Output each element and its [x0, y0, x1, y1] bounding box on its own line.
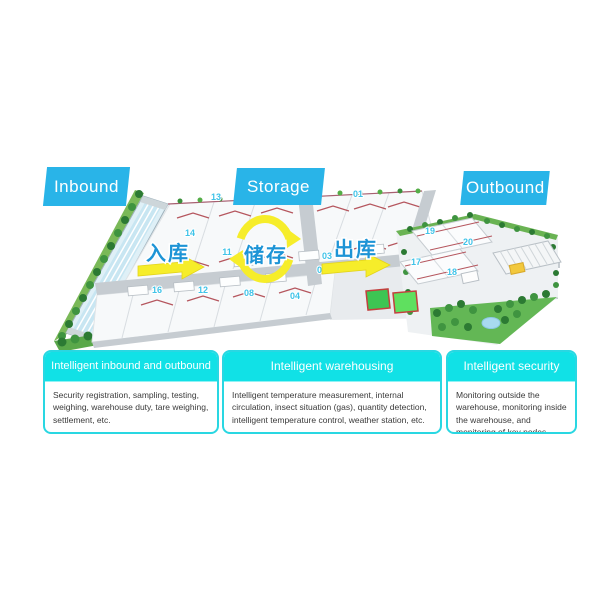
- card-body-text: Monitoring outside the warehouse, monito…: [448, 382, 575, 434]
- warehouse-number: 11: [222, 247, 232, 257]
- warehouse-number: 03: [322, 251, 332, 261]
- pond: [482, 318, 500, 329]
- warehouse-number: 01: [353, 189, 363, 199]
- warehouse-number: 18: [447, 267, 457, 277]
- storage-label: Storage: [233, 168, 325, 205]
- card-title: Intelligent security: [448, 352, 575, 382]
- outbound-label: Outbound: [460, 171, 550, 205]
- card-intelligent-warehousing: Intelligent warehousing Intelligent temp…: [222, 350, 442, 434]
- warehouse-number: 16: [152, 285, 162, 295]
- warehouse-site-map: 13 01 14 11 03 05 16 12 08 04 19 20 17 1…: [0, 0, 600, 600]
- warehouse-number: 08: [244, 288, 254, 298]
- card-intelligent-security: Intelligent security Monitoring outside …: [446, 350, 577, 434]
- warehouse-number: 04: [290, 291, 300, 301]
- card-title: Intelligent warehousing: [224, 352, 440, 382]
- infographic-stage: 13 01 14 11 03 05 16 12 08 04 19 20 17 1…: [0, 0, 600, 600]
- warehouse-number: 19: [425, 226, 435, 236]
- storage-cn-label: 储存: [244, 243, 288, 267]
- outbound-label-text: Outbound: [466, 178, 545, 198]
- inbound-label: Inbound: [43, 167, 130, 206]
- card-body-text: Intelligent temperature measurement, int…: [224, 382, 440, 433]
- inbound-label-text: Inbound: [54, 177, 119, 197]
- card-title: Intelligent inbound and outbound: [45, 352, 217, 382]
- warehouse-number: 20: [463, 237, 473, 247]
- warehouse-number: 12: [198, 285, 208, 295]
- warehouse-number: 13: [211, 192, 221, 202]
- inbound-cn-label: 入库: [146, 241, 190, 265]
- warehouse-number: 14: [185, 228, 195, 238]
- outbound-cn-label: 出库: [334, 237, 378, 261]
- card-body-text: Security registration, sampling, testing…: [45, 382, 217, 433]
- storage-label-text: Storage: [247, 177, 310, 197]
- card-intelligent-inbound-outbound: Intelligent inbound and outbound Securit…: [43, 350, 219, 434]
- warehouse-number: 17: [411, 257, 421, 267]
